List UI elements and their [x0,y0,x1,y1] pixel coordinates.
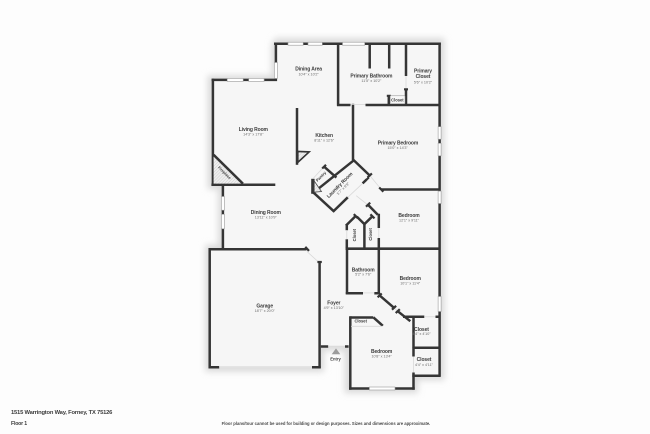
svg-text:12'1" x 9'11": 12'1" x 9'11" [399,219,420,223]
svg-text:4'4" x 4'11": 4'4" x 4'11" [415,363,434,367]
svg-text:Closet: Closet [391,98,404,103]
svg-text:15'0" x 14'3": 15'0" x 14'3" [387,146,408,150]
svg-text:Entry: Entry [330,356,341,361]
svg-text:Floor 1: Floor 1 [11,421,27,427]
svg-text:Closet: Closet [368,228,373,241]
svg-text:11'5" x 10'2": 11'5" x 10'2" [361,79,382,83]
svg-text:5'2" x 7'6": 5'2" x 7'6" [355,273,372,277]
svg-text:Floor plans/tour cannot be use: Floor plans/tour cannot be used for buil… [222,421,431,426]
svg-text:14'3" x 17'8": 14'3" x 17'8" [243,133,264,137]
svg-text:8'11" x 12'6": 8'11" x 12'6" [314,139,335,143]
svg-text:5'6" x 10'2": 5'6" x 10'2" [414,81,433,85]
svg-text:10'8" x 13'4": 10'8" x 13'4" [371,354,392,358]
svg-text:1515 Warrington Way, Forney, T: 1515 Warrington Way, Forney, TX 75126 [11,410,113,416]
svg-text:4'4" x 4'10": 4'4" x 4'10" [412,332,431,336]
svg-text:13'11" x 10'9": 13'11" x 10'9" [255,216,278,220]
svg-text:10'4" x 10'2": 10'4" x 10'2" [298,72,319,76]
svg-text:Closet: Closet [352,228,357,241]
svg-text:18'7" x 20'0": 18'7" x 20'0" [255,309,276,313]
svg-text:10'1" x 11'4": 10'1" x 11'4" [400,282,421,286]
svg-text:Closet: Closet [416,74,431,80]
svg-text:Closet: Closet [354,318,367,323]
svg-text:4'9" x 13'10": 4'9" x 13'10" [324,306,345,310]
